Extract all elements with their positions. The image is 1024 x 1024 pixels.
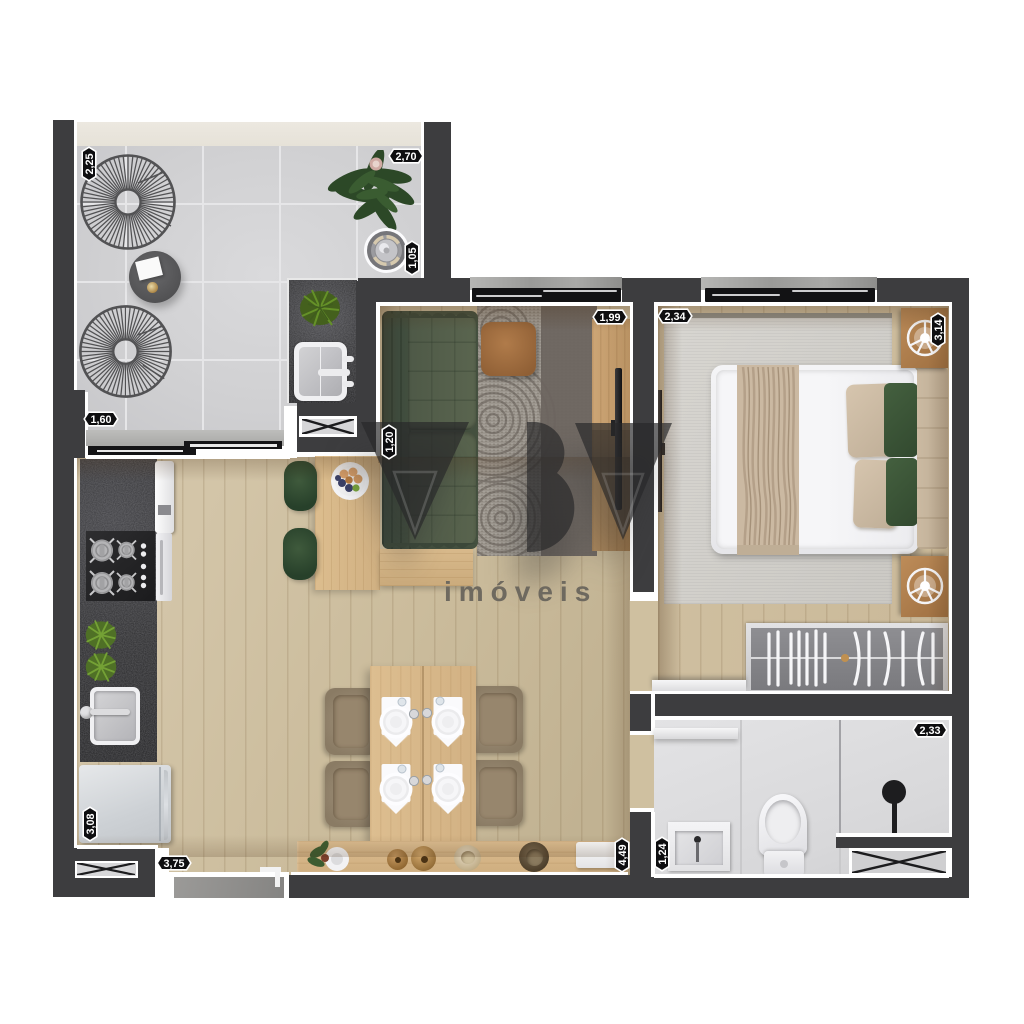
- svg-text:1,20: 1,20: [384, 431, 396, 452]
- svg-text:3,75: 3,75: [163, 858, 184, 870]
- svg-text:2,34: 2,34: [664, 311, 685, 323]
- svg-text:2,70: 2,70: [395, 151, 416, 163]
- svg-text:1,60: 1,60: [90, 414, 111, 426]
- svg-text:2,33: 2,33: [919, 725, 940, 737]
- svg-text:3,14: 3,14: [933, 319, 945, 340]
- svg-text:1,99: 1,99: [599, 311, 620, 323]
- svg-text:2,25: 2,25: [83, 153, 95, 174]
- svg-text:4,49: 4,49: [617, 844, 629, 865]
- svg-text:1,24: 1,24: [656, 843, 668, 864]
- svg-text:3,08: 3,08: [84, 813, 96, 834]
- svg-text:1,05: 1,05: [407, 247, 419, 268]
